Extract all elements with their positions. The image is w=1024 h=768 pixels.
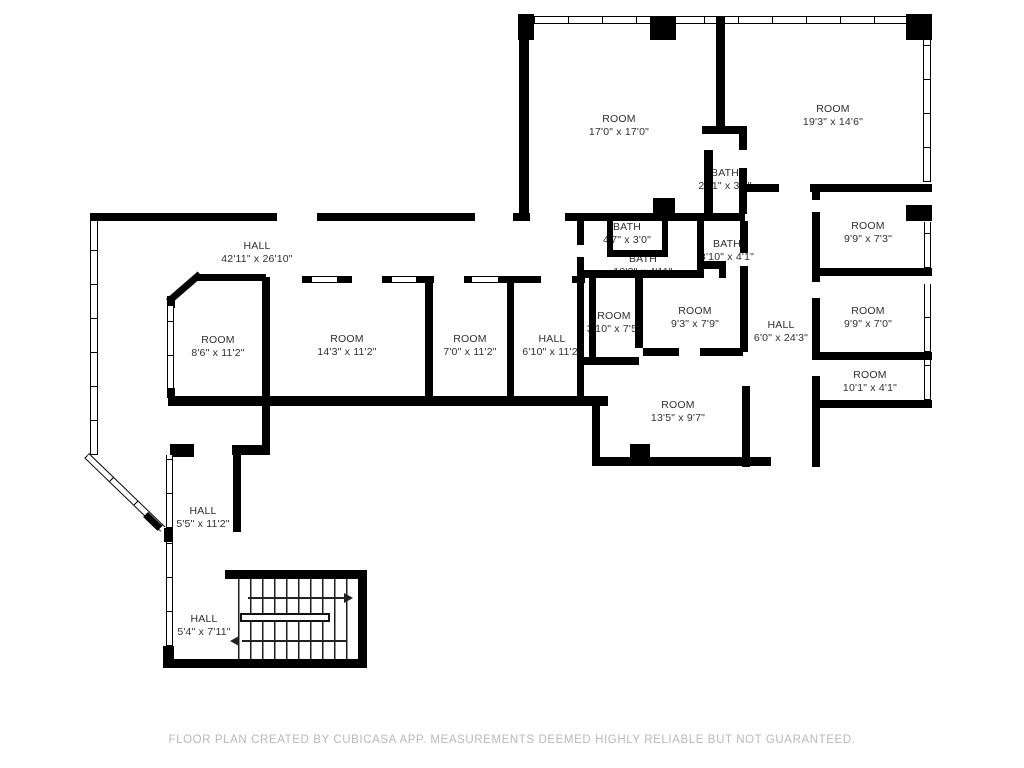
window [924,222,931,268]
window [167,306,174,390]
wall-segment [812,212,820,282]
wall-segment [233,447,241,532]
stair-direction-arrow-icon [230,636,239,646]
wall-segment [812,192,820,200]
room-label: ROOM9'9" x 7'0" [844,305,892,331]
hall-label: HALL42'11" x 26'10" [221,240,293,266]
hall-label: HALL5'4" x 7'11" [177,613,230,639]
room-dims: 14'3" x 11'2" [317,346,376,359]
window [311,276,337,283]
wall-segment [719,261,726,278]
room-dims: 8'6" x 11'2" [191,347,244,360]
wall-segment [507,277,514,403]
wall-segment [589,277,596,357]
stair-rail [240,613,330,622]
hall-label: HALL5'5" x 11'2" [176,505,229,531]
wall-segment [382,276,391,283]
hall-label: HALL6'0" x 24'3" [754,319,808,345]
disclaimer-text: FLOOR PLAN CREATED BY CUBICASA APP. MEAS… [0,734,1024,746]
wall-segment [577,357,639,365]
wall-segment [168,396,608,406]
wall-segment [337,276,352,283]
room-name: HALL [177,613,230,626]
window [166,455,173,528]
room-name: ROOM [803,103,863,116]
room-name: HALL [221,240,293,253]
room-dims: 42'11" x 26'10" [221,253,293,266]
room-dims: 6'0" x 24'3" [754,332,808,345]
room-name: ROOM [671,305,719,318]
room-label: ROOM13'5" x 9'7" [651,399,705,425]
wall-segment [810,184,932,192]
room-dims: 10'1" x 4'1" [843,382,897,395]
room-dims: 6'10" x 11'2" [522,346,581,359]
wall-segment [820,400,932,408]
wall-segment [196,274,266,281]
wall-segment [577,221,584,245]
room-dims: 5'4" x 7'11" [177,626,230,639]
room-name: ROOM [589,113,649,126]
room-dims: 17'0" x 17'0" [589,126,649,139]
wall-segment [820,352,932,360]
room-dims: 9'9" x 7'0" [844,318,892,331]
room-name: ROOM [443,333,496,346]
wall-segment [635,277,643,348]
wall-segment [820,268,932,276]
wall-segment [716,16,725,128]
wall-segment [232,445,270,455]
wall-segment [812,376,820,467]
wall-segment [163,659,367,668]
window [924,360,931,400]
wall-segment [577,277,584,396]
wall-segment [742,386,750,467]
room-name: ROOM [317,333,376,346]
wall-segment [90,213,277,221]
wall-segment [164,528,173,542]
wall-segment [630,444,650,458]
window [923,40,931,182]
wall-segment [167,388,175,398]
wall-segment [643,348,679,356]
floor-plan: ROOM17'0" x 17'0" ROOM19'3" x 14'6" BATH… [0,0,1024,768]
wall-segment [740,221,748,253]
room-name: ROOM [191,334,244,347]
wall-segment [464,276,471,283]
room-label: ROOM10'1" x 4'1" [843,369,897,395]
room-label: ROOM7'0" x 11'2" [443,333,496,359]
room-dims: 9'3" x 7'9" [671,318,719,331]
wall-segment [607,250,668,257]
stair-up-line [248,597,344,599]
room-label: ROOM9'9" x 7'3" [844,220,892,246]
room-dims: 19'3" x 14'6" [803,116,863,129]
room-name: ROOM [651,399,705,412]
wall-segment [166,271,202,304]
wall-segment [425,277,433,403]
room-dims: 13'5" x 9'7" [651,412,705,425]
room-name: HALL [522,333,581,346]
wall-segment [906,14,932,40]
wall-segment [704,150,713,214]
wall-segment [739,134,747,150]
wall-segment [358,570,367,668]
wall-segment [812,298,820,360]
room-label: ROOM8'6" x 11'2" [191,334,244,360]
window [90,221,98,455]
wall-segment [702,126,747,134]
wall-segment [700,348,743,356]
hall-label: HALL6'10" x 11'2" [522,333,581,359]
wall-segment [498,276,541,283]
wall-segment [740,457,771,466]
wall-segment [906,205,932,221]
wall-segment [592,404,600,462]
room-dims: 7'0" x 11'2" [443,346,496,359]
room-dims: 9'9" x 7'3" [844,233,892,246]
wall-segment [170,444,194,457]
stair-direction-arrow-icon [344,593,353,603]
window [166,542,173,646]
wall-segment [746,184,779,192]
room-label: ROOM14'3" x 11'2" [317,333,376,359]
room-label: ROOM17'0" x 17'0" [589,113,649,139]
wall-segment [317,213,475,221]
wall-segment [572,276,585,283]
wall-segment [225,570,367,579]
room-name: HALL [754,319,808,332]
room-dims: 5'5" x 11'2" [176,518,229,531]
wall-segment [513,213,530,221]
stair-down-line [242,640,346,642]
room-name: ROOM [844,305,892,318]
wall-segment [302,276,311,283]
room-label: ROOM19'3" x 14'6" [803,103,863,129]
room-name: ROOM [844,220,892,233]
wall-segment [653,198,675,215]
room-name: ROOM [843,369,897,382]
room-label: ROOM9'3" x 7'9" [671,305,719,331]
wall-segment [262,277,270,403]
wall-segment [650,16,676,40]
room-name: HALL [176,505,229,518]
window [391,276,416,283]
wall-segment [592,457,752,466]
wall-segment [519,24,529,214]
window [471,276,498,283]
window [924,284,931,352]
wall-segment [740,266,748,352]
